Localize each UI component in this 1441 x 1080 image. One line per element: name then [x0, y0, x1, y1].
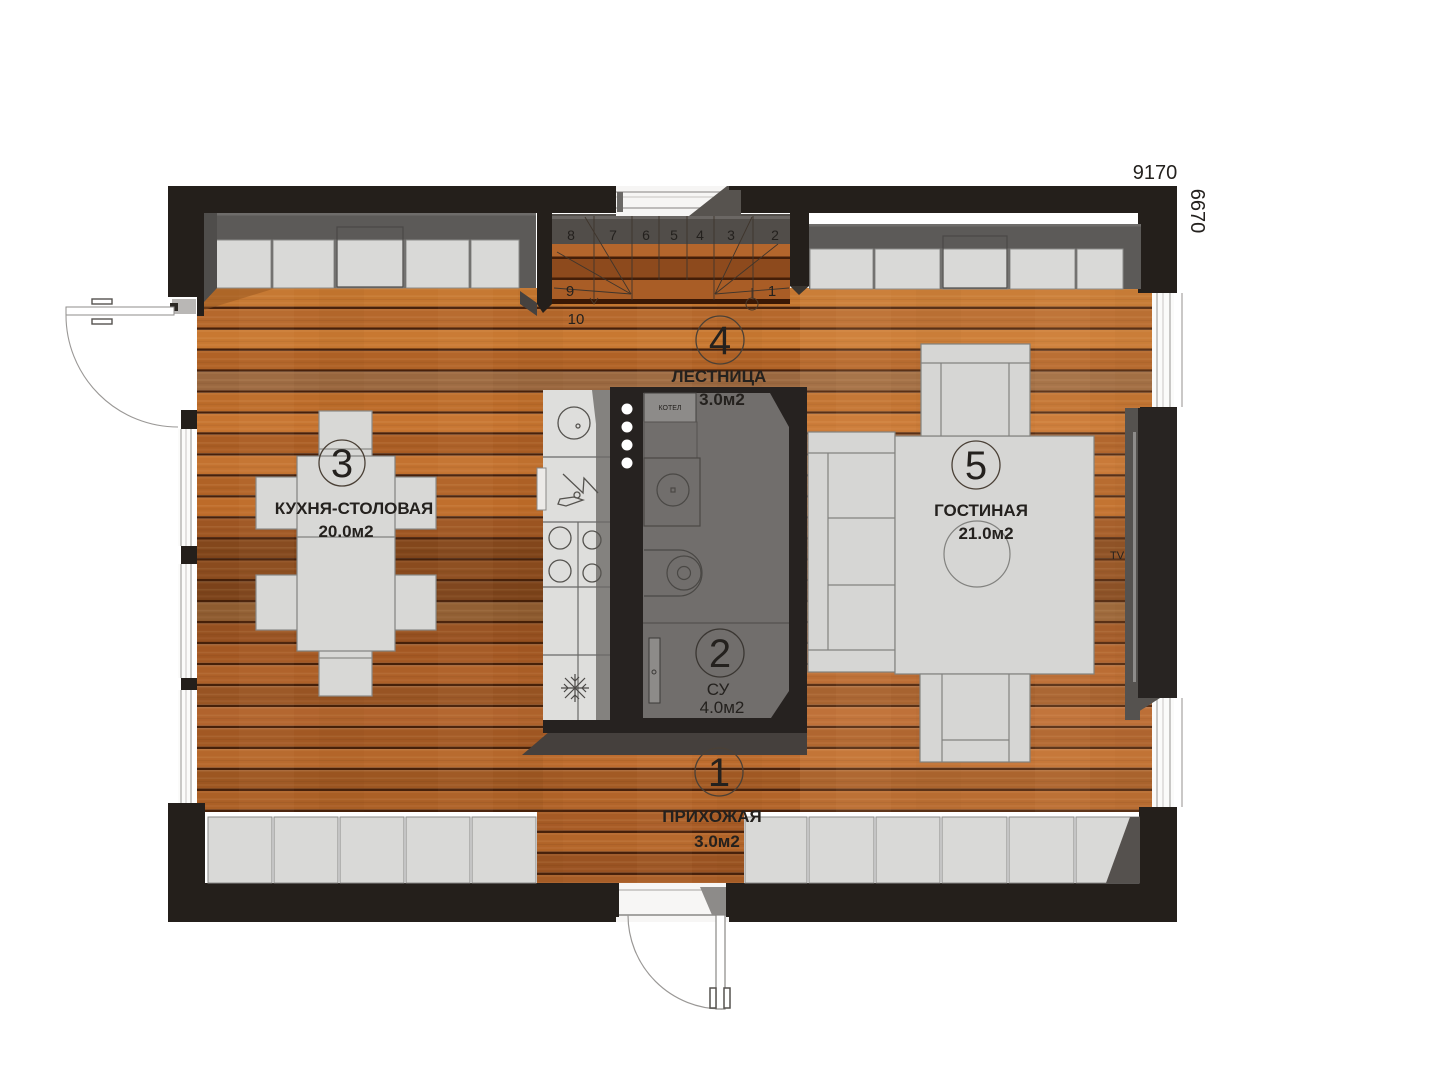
svg-text:10: 10 [568, 311, 585, 328]
svg-text:8: 8 [567, 227, 575, 243]
svg-text:9170: 9170 [1133, 162, 1178, 184]
svg-text:6670: 6670 [1186, 189, 1208, 234]
svg-text:4: 4 [696, 227, 704, 243]
svg-text:3: 3 [331, 442, 353, 486]
svg-text:1: 1 [708, 751, 730, 795]
svg-text:3: 3 [727, 227, 735, 243]
svg-text:9: 9 [566, 283, 574, 300]
svg-text:ГОСТИНАЯ: ГОСТИНАЯ [934, 501, 1028, 520]
svg-text:20.0м2: 20.0м2 [318, 522, 373, 541]
svg-text:2: 2 [771, 227, 779, 243]
svg-text:7: 7 [609, 227, 617, 243]
svg-text:4: 4 [709, 319, 731, 363]
svg-text:2: 2 [709, 632, 731, 676]
svg-text:3.0м2: 3.0м2 [694, 832, 740, 851]
svg-text:6: 6 [642, 227, 650, 243]
svg-text:КОТЕЛ: КОТЕЛ [659, 405, 682, 412]
svg-text:СУ: СУ [707, 680, 730, 699]
svg-text:TV: TV [1110, 550, 1125, 562]
svg-text:КУХНЯ-СТОЛОВАЯ: КУХНЯ-СТОЛОВАЯ [275, 499, 434, 518]
svg-text:ЛЕСТНИЦА: ЛЕСТНИЦА [672, 367, 767, 386]
svg-text:5: 5 [670, 227, 678, 243]
svg-text:3.0м2: 3.0м2 [699, 390, 745, 409]
svg-text:5: 5 [965, 444, 987, 488]
svg-text:21.0м2: 21.0м2 [958, 524, 1013, 543]
svg-text:1: 1 [768, 283, 776, 300]
svg-text:4.0м2: 4.0м2 [700, 698, 745, 717]
svg-text:ПРИХОЖАЯ: ПРИХОЖАЯ [662, 807, 762, 826]
